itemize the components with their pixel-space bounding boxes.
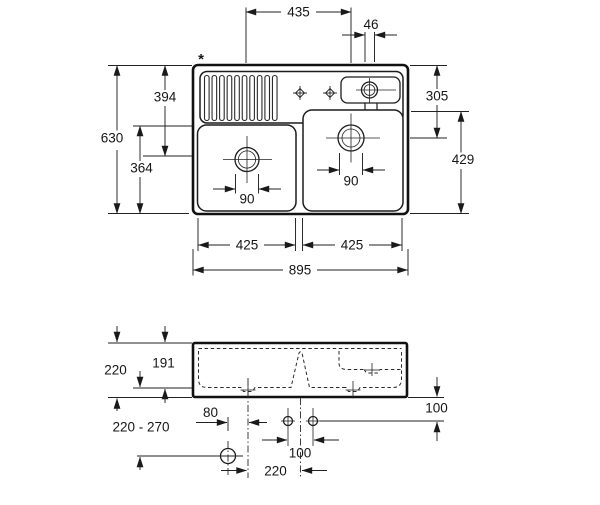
dim-outlet-height-range-label: 220 - 270 <box>112 420 169 435</box>
dim-tap-hole-setback: 100 <box>425 377 448 441</box>
dim-outlet-height-range: 220 - 270 <box>112 371 169 470</box>
dim-right-bowl-depth-label: 429 <box>452 152 475 167</box>
dim-total-height-label: 220 <box>104 363 127 378</box>
dim-right-drain-diameter-label: 90 <box>343 174 358 189</box>
dim-front-to-left-bowl: 364 <box>130 126 153 214</box>
top-view: * <box>101 5 475 278</box>
dim-right-bowl-width: 425 <box>303 238 402 253</box>
dim-back-to-left-drain: 394 <box>154 66 177 157</box>
dim-outlet-offset: 80 <box>196 405 267 423</box>
front-view: 220 191 220 - 270 100 80 100 <box>104 326 448 479</box>
dim-back-to-right-drain-label: 305 <box>426 89 449 104</box>
dim-right-bowl-depth: 429 <box>452 112 475 214</box>
dim-channel-width-label: 46 <box>363 17 378 32</box>
dim-right-bowl-width-label: 425 <box>341 238 364 253</box>
dim-between-drains: 435 <box>246 5 351 64</box>
technical-drawing: * <box>0 0 600 500</box>
dim-total-width: 895 <box>194 263 408 278</box>
dim-bowl-inner-depth: 191 <box>152 326 175 403</box>
dim-back-to-left-drain-label: 394 <box>154 90 177 105</box>
dim-back-to-right-drain: 305 <box>426 66 449 139</box>
dim-tap-hole-spacing-label: 100 <box>289 446 312 461</box>
dim-drain-to-centerline: 220 <box>221 464 327 479</box>
dim-left-bowl-width: 425 <box>199 238 296 253</box>
dim-total-width-label: 895 <box>289 263 312 278</box>
sink-dimension-diagram: * <box>0 0 600 500</box>
dim-total-depth-label: 630 <box>101 131 124 146</box>
dim-left-bowl-width-label: 425 <box>236 238 259 253</box>
dim-tap-hole-setback-label: 100 <box>425 401 448 416</box>
dim-bowl-inner-depth-label: 191 <box>152 356 175 371</box>
dim-drain-to-centerline-label: 220 <box>264 464 287 479</box>
dim-front-to-left-bowl-label: 364 <box>130 161 153 176</box>
dim-outlet-offset-label: 80 <box>203 405 218 420</box>
dim-left-drain-diameter-label: 90 <box>239 192 254 207</box>
dim-total-height: 220 <box>104 326 127 411</box>
dim-total-depth: 630 <box>101 66 124 214</box>
dim-channel-width: 46 <box>342 17 397 62</box>
dim-between-drains-label: 435 <box>287 5 310 20</box>
